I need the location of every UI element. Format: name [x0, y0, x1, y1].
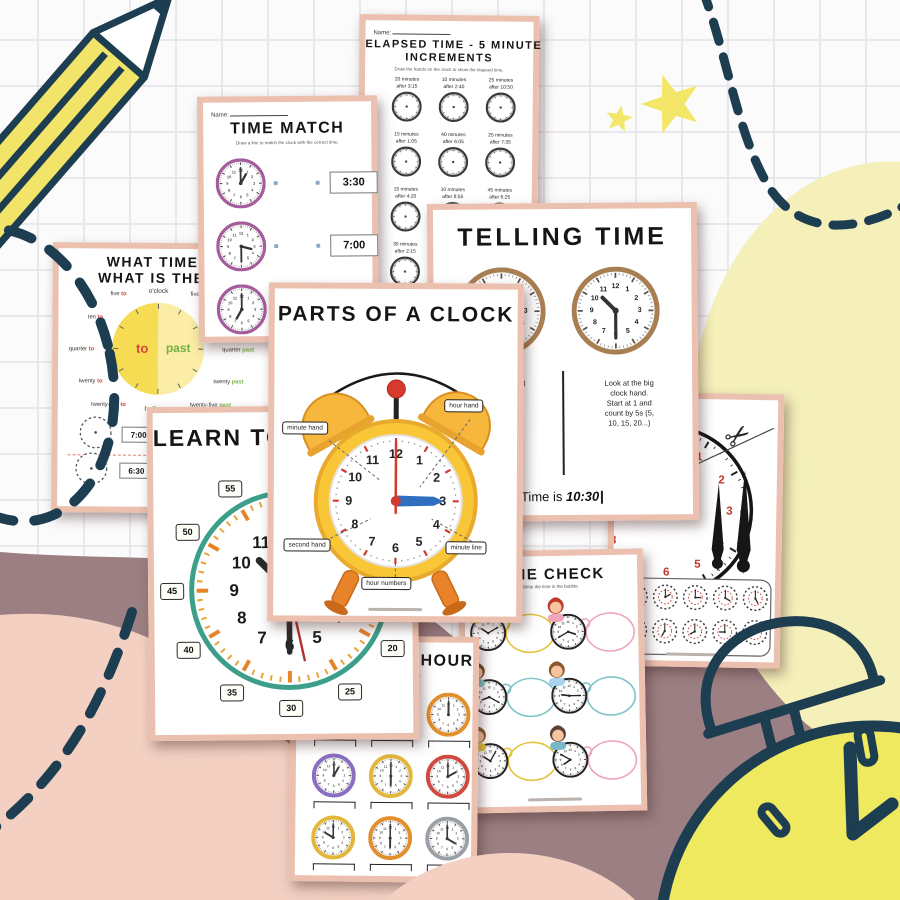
svg-text:2: 2	[457, 707, 459, 711]
svg-text:6: 6	[446, 847, 448, 851]
svg-text:4: 4	[456, 780, 458, 784]
svg-text:7: 7	[384, 845, 386, 849]
svg-text:quarter to: quarter to	[69, 346, 95, 352]
svg-text:5: 5	[395, 783, 397, 787]
analog-clock: 123456789101112	[369, 754, 414, 803]
svg-text:10: 10	[348, 470, 362, 484]
svg-text:2: 2	[718, 474, 725, 486]
svg-text:7: 7	[442, 722, 444, 726]
match-dot	[274, 244, 278, 248]
kid-avatar	[545, 660, 570, 691]
svg-text:9: 9	[322, 773, 324, 777]
svg-text:11: 11	[441, 765, 445, 769]
worksheet-collage: Name: ELAPSED TIME - 5 MINUTE INCREMENTS…	[0, 0, 900, 900]
name-field: Name:	[373, 28, 450, 37]
svg-text:12: 12	[239, 231, 244, 236]
analog-clock: 123456789101112	[215, 158, 265, 213]
label-hour-numbers: hour numbers	[361, 577, 411, 590]
speech-bubble	[578, 610, 637, 660]
svg-text:3: 3	[400, 774, 402, 778]
problem-label: after 3:15	[380, 83, 434, 90]
svg-text:6: 6	[447, 723, 449, 727]
svg-text:10: 10	[323, 768, 327, 772]
svg-text:5: 5	[416, 535, 423, 549]
problem-label: after 7:35	[473, 139, 527, 146]
svg-text:4: 4	[341, 841, 343, 845]
name-rule	[230, 110, 288, 117]
svg-text:4: 4	[433, 518, 440, 532]
svg-text:o'clock: o'clock	[149, 288, 169, 295]
match-dot	[316, 244, 320, 248]
svg-text:5: 5	[338, 783, 340, 787]
svg-text:9: 9	[345, 494, 352, 508]
svg-text:twenty-five to: twenty-five to	[91, 402, 126, 408]
worksheet-parts-of-a-clock: PARTS OF A CLOCK 123456789101112 minute …	[267, 282, 524, 622]
svg-text:11: 11	[326, 826, 330, 830]
mini-clock	[683, 585, 709, 615]
svg-text:10: 10	[438, 707, 442, 711]
svg-text:7: 7	[369, 535, 376, 549]
svg-text:3: 3	[343, 774, 345, 778]
speech-bubble	[580, 738, 639, 788]
sheet-instruction: Draw a line to match the clock with the …	[203, 139, 371, 145]
answer-line	[371, 740, 413, 747]
analog-clock: 123456789101112	[426, 692, 471, 741]
answer-line	[428, 740, 470, 747]
svg-text:1: 1	[338, 826, 340, 830]
svg-text:4: 4	[342, 779, 344, 783]
svg-text:10: 10	[436, 831, 440, 835]
svg-text:10: 10	[379, 831, 383, 835]
kid-avatar	[546, 724, 571, 755]
svg-text:9: 9	[436, 775, 438, 779]
minute-label-box: 30	[279, 700, 303, 717]
mini-clock	[682, 619, 708, 649]
svg-text:2: 2	[398, 831, 400, 835]
svg-text:1: 1	[626, 286, 630, 293]
speech-bubble	[579, 674, 638, 724]
svg-text:8: 8	[437, 842, 439, 846]
problem-label: after 2:40	[427, 83, 481, 90]
problem-label: after 2:15	[378, 248, 432, 255]
svg-text:twenty to: twenty to	[79, 378, 103, 384]
svg-text:8: 8	[323, 841, 325, 845]
svg-text:4: 4	[635, 319, 639, 326]
svg-text:1: 1	[452, 828, 454, 832]
svg-text:8: 8	[438, 718, 440, 722]
answer-box: 7:00	[330, 234, 378, 256]
problem-label: after 6:05	[426, 138, 480, 145]
svg-text:1: 1	[452, 766, 454, 770]
problem-label: after 4:20	[379, 193, 433, 200]
minute-label-box: 40	[177, 642, 201, 659]
mini-clock	[742, 620, 768, 650]
column-divider	[562, 371, 564, 475]
svg-text:10: 10	[380, 769, 384, 773]
problem-label: after 6:25	[473, 194, 527, 201]
svg-text:quarter past: quarter past	[222, 347, 254, 353]
svg-text:2: 2	[634, 295, 638, 302]
svg-text:8: 8	[324, 779, 326, 783]
label-minute-hand: minute hand	[282, 421, 328, 434]
svg-text:5: 5	[451, 846, 453, 850]
analog-clock	[75, 452, 107, 489]
analog-clock: 123456789101112	[217, 284, 267, 339]
svg-text:10: 10	[437, 769, 441, 773]
svg-text:11: 11	[440, 827, 444, 831]
sheet-title: TELLING TIME	[433, 222, 691, 253]
svg-text:7: 7	[441, 846, 443, 850]
svg-text:past: past	[166, 341, 191, 355]
svg-text:4: 4	[398, 841, 400, 845]
svg-text:8: 8	[380, 841, 382, 845]
svg-text:3: 3	[524, 308, 528, 315]
svg-text:3: 3	[400, 836, 402, 840]
svg-text:4: 4	[399, 779, 401, 783]
name-rule	[393, 28, 451, 35]
mini-clock	[652, 618, 678, 648]
svg-text:11: 11	[383, 827, 387, 831]
analog-clock	[473, 147, 527, 178]
answer-line	[314, 739, 356, 746]
svg-text:3: 3	[457, 837, 459, 841]
svg-text:3: 3	[457, 775, 459, 779]
minute-label-box: 25	[338, 683, 362, 700]
analog-clock	[79, 416, 111, 453]
svg-text:10: 10	[591, 295, 599, 302]
svg-text:3: 3	[638, 307, 642, 314]
svg-text:6: 6	[392, 541, 399, 555]
svg-text:five to: five to	[110, 291, 127, 297]
sheet-title-line2: INCREMENTS	[365, 51, 533, 65]
mini-clock	[712, 619, 738, 649]
minute-label-box: 45	[160, 583, 184, 600]
svg-text:5: 5	[394, 845, 396, 849]
svg-text:1: 1	[453, 704, 455, 708]
mini-clock	[653, 584, 679, 614]
svg-text:1: 1	[395, 827, 397, 831]
elapsed-problem: 25 minutesafter 10:50	[474, 77, 528, 123]
svg-text:5: 5	[626, 328, 630, 335]
svg-text:10: 10	[227, 237, 232, 242]
match-dot	[274, 181, 278, 185]
minute-label-box: 50	[176, 524, 200, 541]
svg-text:2: 2	[433, 471, 440, 485]
sheet-instruction: Draw the hands on the clock to show the …	[365, 66, 533, 73]
svg-text:1: 1	[416, 453, 423, 467]
name-label: Name:	[211, 113, 229, 119]
footer-credit	[368, 608, 422, 611]
svg-text:8: 8	[351, 517, 358, 531]
svg-text:1: 1	[395, 765, 397, 769]
analog-clock: 123456789101112	[571, 266, 660, 360]
answer-box: 3:30	[330, 171, 378, 193]
svg-text:4: 4	[457, 718, 459, 722]
svg-text:3: 3	[343, 836, 345, 840]
svg-text:11: 11	[366, 453, 379, 467]
svg-text:2: 2	[341, 830, 343, 834]
svg-text:7: 7	[602, 328, 606, 335]
cursor-bar	[601, 491, 603, 504]
sheet-title: TIME MATCH	[203, 119, 371, 138]
svg-text:6: 6	[663, 566, 670, 578]
answer-line	[313, 801, 355, 808]
svg-text:9: 9	[437, 713, 439, 717]
minute-label-box: 20	[381, 640, 405, 657]
problem-label: after 1:05	[379, 138, 433, 145]
svg-text:3: 3	[458, 713, 460, 717]
svg-text:8: 8	[438, 780, 440, 784]
mini-clock	[713, 585, 739, 615]
svg-text:6: 6	[332, 846, 334, 850]
mini-clock	[743, 586, 769, 616]
svg-text:8: 8	[593, 319, 597, 326]
svg-text:5: 5	[452, 784, 454, 788]
analog-clock: 123456789101112	[426, 754, 471, 803]
label-second-hand: second hand	[283, 538, 330, 551]
svg-text:11: 11	[600, 286, 608, 293]
label-minute-line: minute line	[445, 541, 487, 554]
svg-text:11: 11	[441, 703, 445, 707]
svg-text:5: 5	[694, 559, 701, 571]
sheet-title: ELAPSED TIME - 5 MINUTE	[365, 38, 533, 52]
time-value: 10:30	[566, 489, 599, 504]
label-hour-hand: hour hand	[444, 399, 483, 412]
time-answer: Time is 10:30	[521, 489, 603, 505]
match-dot	[316, 181, 320, 185]
svg-text:2: 2	[455, 831, 457, 835]
svg-text:2: 2	[342, 768, 344, 772]
svg-text:10: 10	[228, 300, 233, 305]
svg-text:5: 5	[453, 722, 455, 726]
svg-text:9: 9	[379, 836, 381, 840]
kid-avatar	[544, 596, 569, 627]
name-field: Name:	[211, 110, 288, 119]
svg-text:6: 6	[333, 784, 335, 788]
svg-text:2: 2	[399, 769, 401, 773]
problem-label: after 8:55	[426, 193, 480, 200]
svg-text:10: 10	[227, 174, 232, 179]
svg-text:7: 7	[384, 783, 386, 787]
svg-text:11: 11	[384, 765, 388, 769]
svg-text:twenty past: twenty past	[213, 379, 243, 385]
analog-clock	[474, 92, 528, 123]
svg-text:7: 7	[327, 845, 329, 849]
name-label: Name:	[373, 30, 391, 36]
svg-text:ten to: ten to	[88, 314, 104, 320]
answer-line	[427, 802, 469, 809]
analog-clock: 123456789101112	[216, 221, 266, 276]
analog-clock: 123456789101112	[312, 753, 357, 802]
svg-text:8: 8	[612, 535, 617, 547]
svg-text:12: 12	[612, 283, 620, 290]
svg-text:to: to	[136, 341, 148, 356]
svg-text:5: 5	[337, 845, 339, 849]
svg-text:9: 9	[590, 307, 594, 314]
elapsed-problem: 25 minutesafter 7:35	[473, 132, 527, 178]
svg-text:8: 8	[381, 779, 383, 783]
minute-label-box: 35	[220, 684, 244, 701]
problem-label: after 10:50	[474, 84, 528, 91]
svg-text:9: 9	[322, 835, 324, 839]
minute-label-box: 55	[218, 480, 242, 497]
time-label: Time is	[521, 489, 563, 504]
svg-text:6: 6	[447, 785, 449, 789]
alarm-clock-diagram: 123456789101112	[273, 288, 518, 621]
svg-text:9: 9	[379, 774, 381, 778]
pink-blob-bottom-center	[345, 853, 675, 900]
svg-text:7: 7	[327, 783, 329, 787]
answer-line	[370, 802, 412, 809]
svg-text:9: 9	[436, 837, 438, 841]
svg-text:3: 3	[726, 506, 733, 518]
big-hand-copy: Look at the big clock hand. Start at 1 a…	[568, 378, 690, 429]
svg-text:7: 7	[441, 784, 443, 788]
svg-text:11: 11	[327, 764, 331, 768]
